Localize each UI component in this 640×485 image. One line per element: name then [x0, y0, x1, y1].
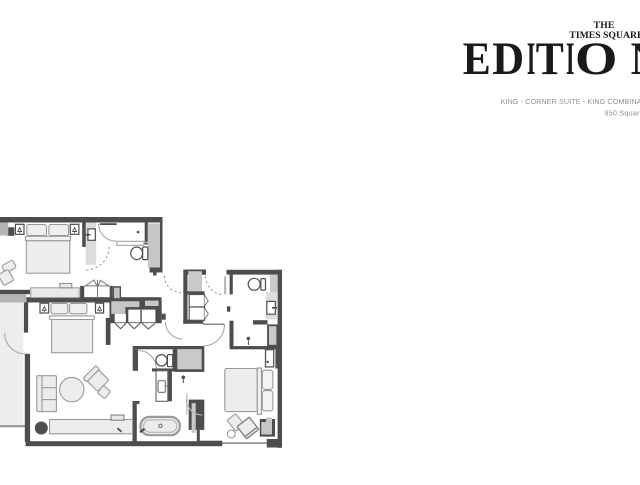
svg-text:E: E	[463, 34, 491, 85]
svg-text:I: I	[566, 34, 574, 85]
svg-text:I: I	[527, 34, 535, 85]
svg-text:N: N	[631, 34, 640, 85]
svg-text:T: T	[536, 34, 564, 85]
svg-text:950 Square Feet: 950 Square Feet	[604, 108, 640, 117]
svg-text:D: D	[492, 34, 524, 85]
svg-text:O: O	[575, 34, 618, 85]
svg-text:KING - CORNER SUITE - KING COM: KING - CORNER SUITE - KING COMBINATION S…	[501, 97, 640, 106]
